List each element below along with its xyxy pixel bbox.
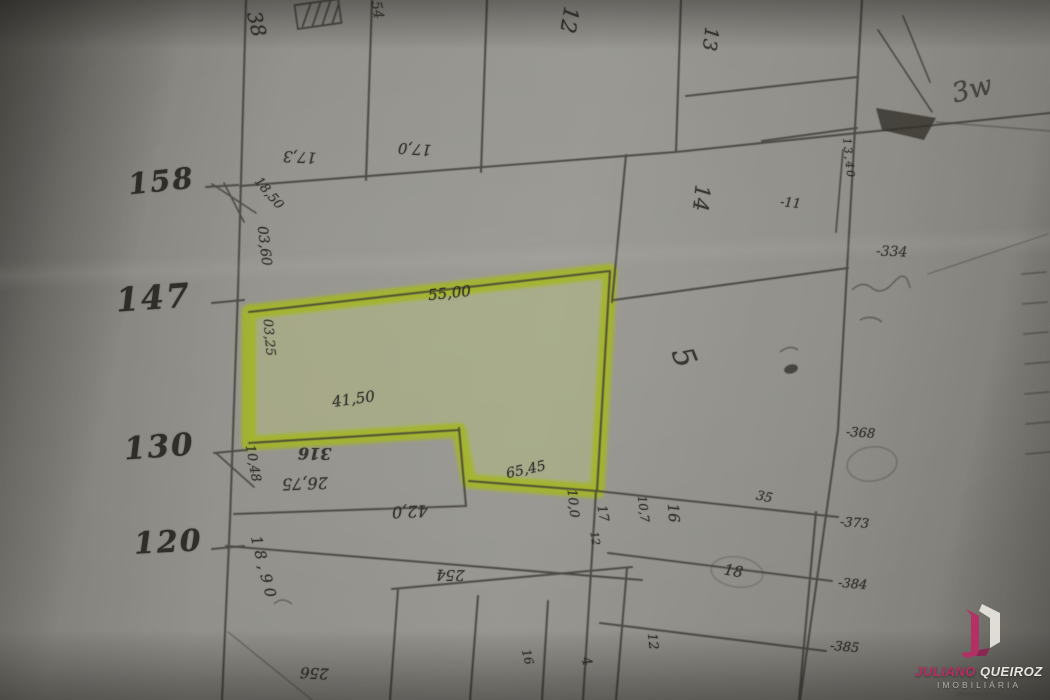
survey-number: -384 bbox=[837, 576, 867, 593]
ruler-number-158: 158 bbox=[126, 161, 196, 202]
hatched-box bbox=[295, 0, 342, 29]
lot-boundary-drawing bbox=[0, 0, 1050, 700]
survey-number: 17 bbox=[593, 504, 611, 523]
survey-number: -368 bbox=[846, 425, 876, 442]
lot-number: 16 bbox=[664, 503, 683, 523]
survey-number: 12 bbox=[644, 632, 661, 650]
dimension-label: 26,75 bbox=[282, 473, 328, 494]
lot-number: 14 bbox=[688, 183, 715, 212]
ruler-number-130: 130 bbox=[123, 427, 196, 468]
survey-number: -334 bbox=[876, 243, 908, 260]
lot-number: 12 bbox=[555, 5, 583, 35]
survey-number: -11 bbox=[779, 195, 801, 212]
dimension-label: 17,0 bbox=[397, 139, 432, 159]
ruler-number-120: 120 bbox=[133, 523, 203, 562]
survey-number: -385 bbox=[829, 639, 859, 656]
survey-number: -373 bbox=[840, 515, 870, 532]
plat-map-photo: 158 147 130 120 38 54 12 17,3 17,0 13 3w… bbox=[0, 0, 1050, 700]
survey-number: 35 bbox=[755, 488, 774, 506]
dimension-label: 03,25 bbox=[260, 318, 278, 356]
lot-number: 54 bbox=[367, 0, 386, 20]
dimension-label: 42,0 bbox=[392, 501, 429, 522]
survey-number: 12 bbox=[587, 530, 602, 546]
ruler-number-147: 147 bbox=[115, 275, 192, 319]
lot-number: 13 bbox=[698, 26, 723, 53]
lot-number: 256 bbox=[300, 663, 330, 682]
lot-number-316: 316 bbox=[298, 444, 332, 464]
dimension-label: 17,3 bbox=[283, 147, 317, 167]
lot-number: 254 bbox=[436, 566, 465, 584]
lot-number: 18 bbox=[723, 560, 745, 581]
dimension-label: 10,0 bbox=[564, 488, 582, 518]
